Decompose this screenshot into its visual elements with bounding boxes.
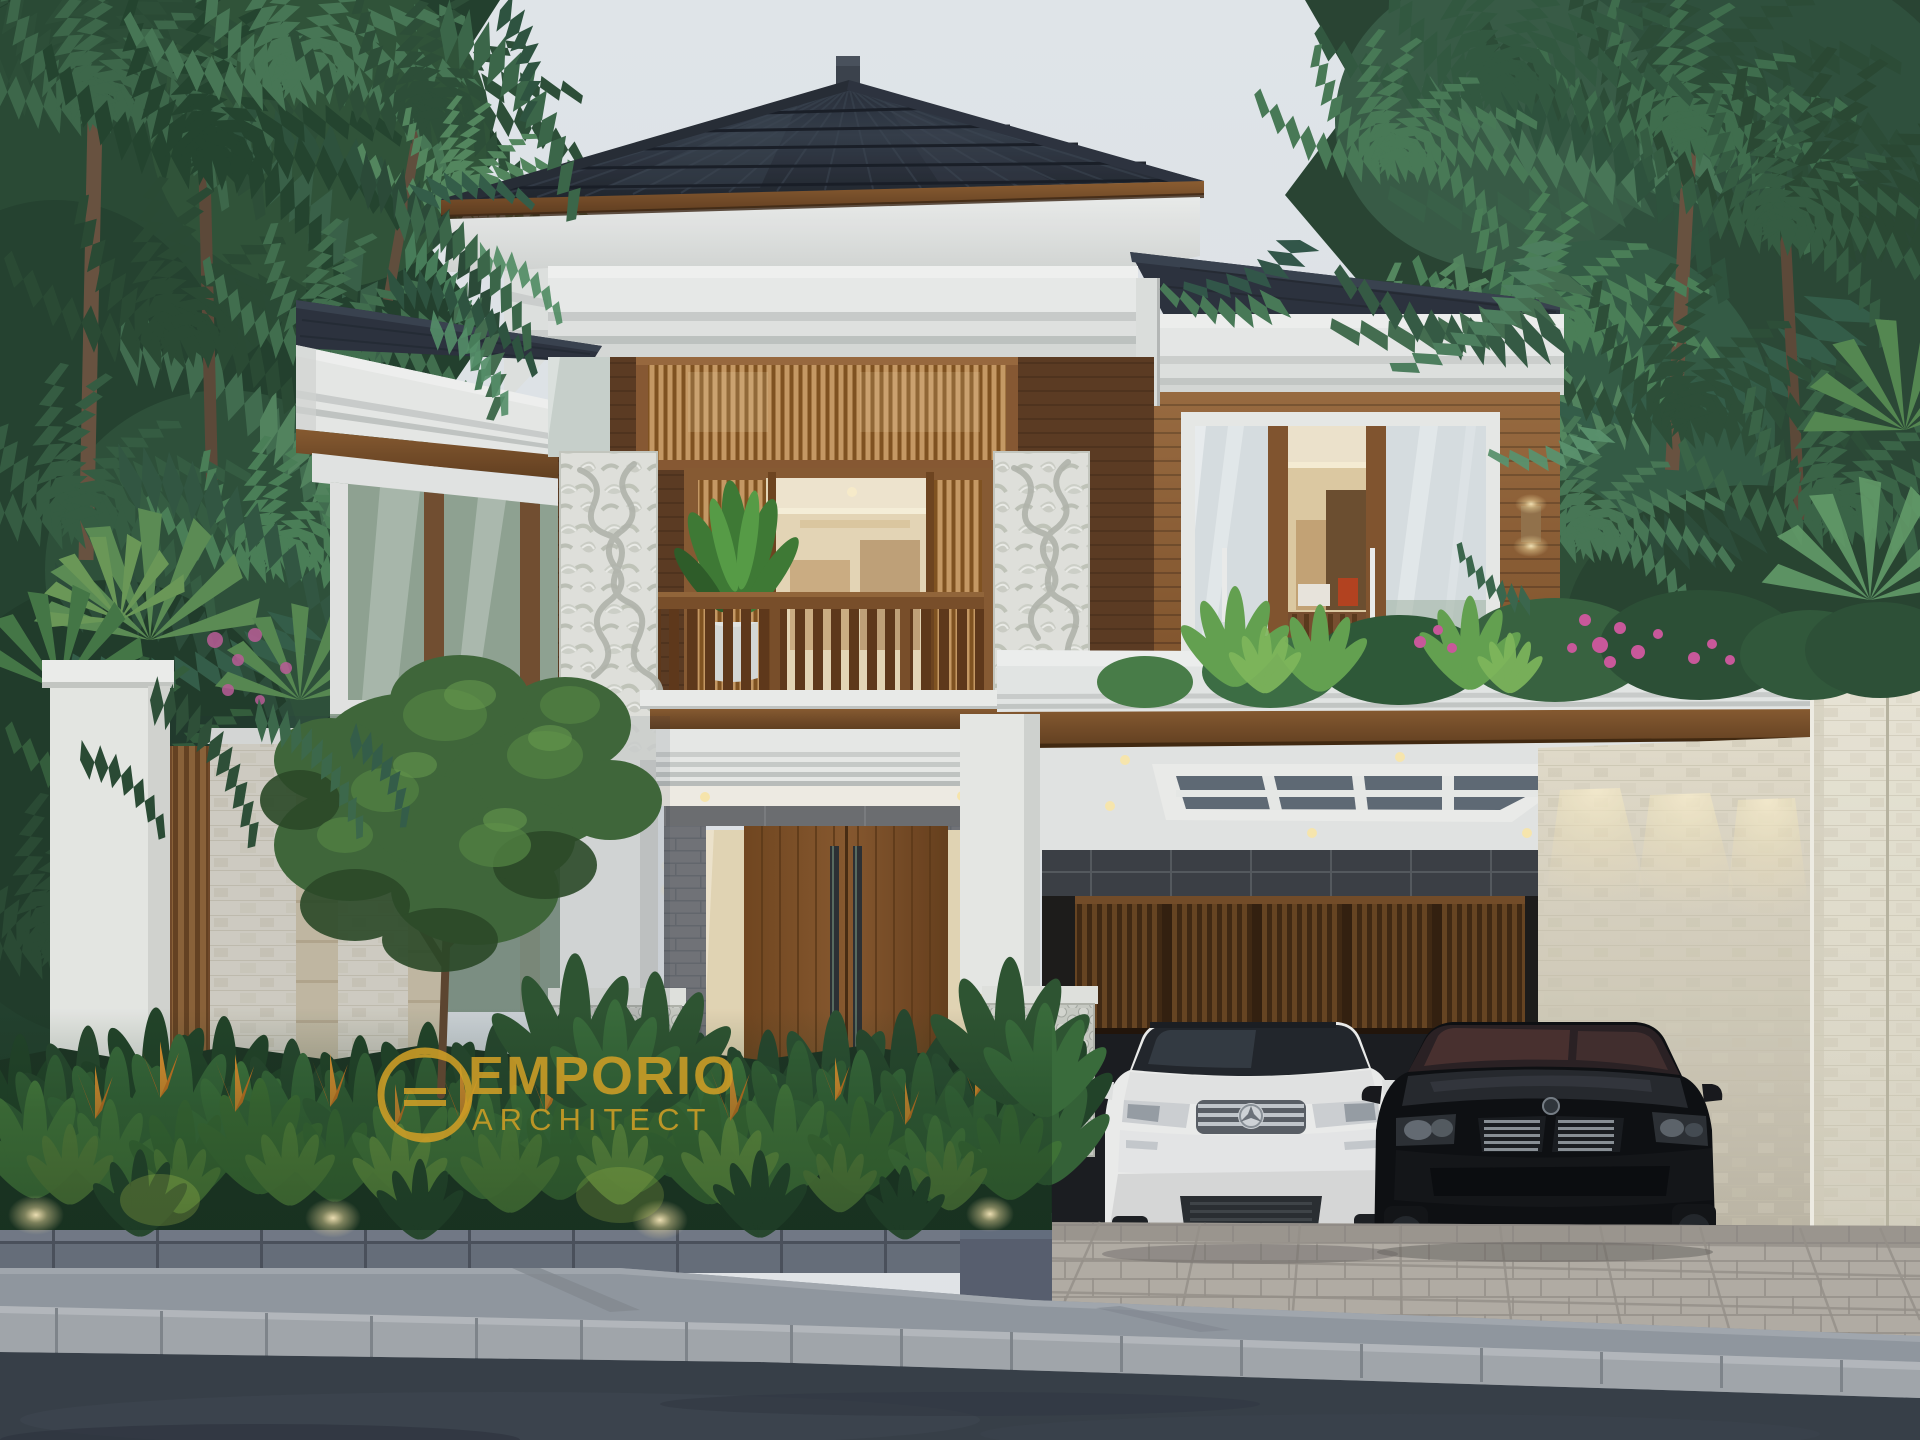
svg-text:EMPORIO: EMPORIO [468, 1046, 737, 1106]
svg-text:ARCHITECT: ARCHITECT [472, 1102, 712, 1137]
